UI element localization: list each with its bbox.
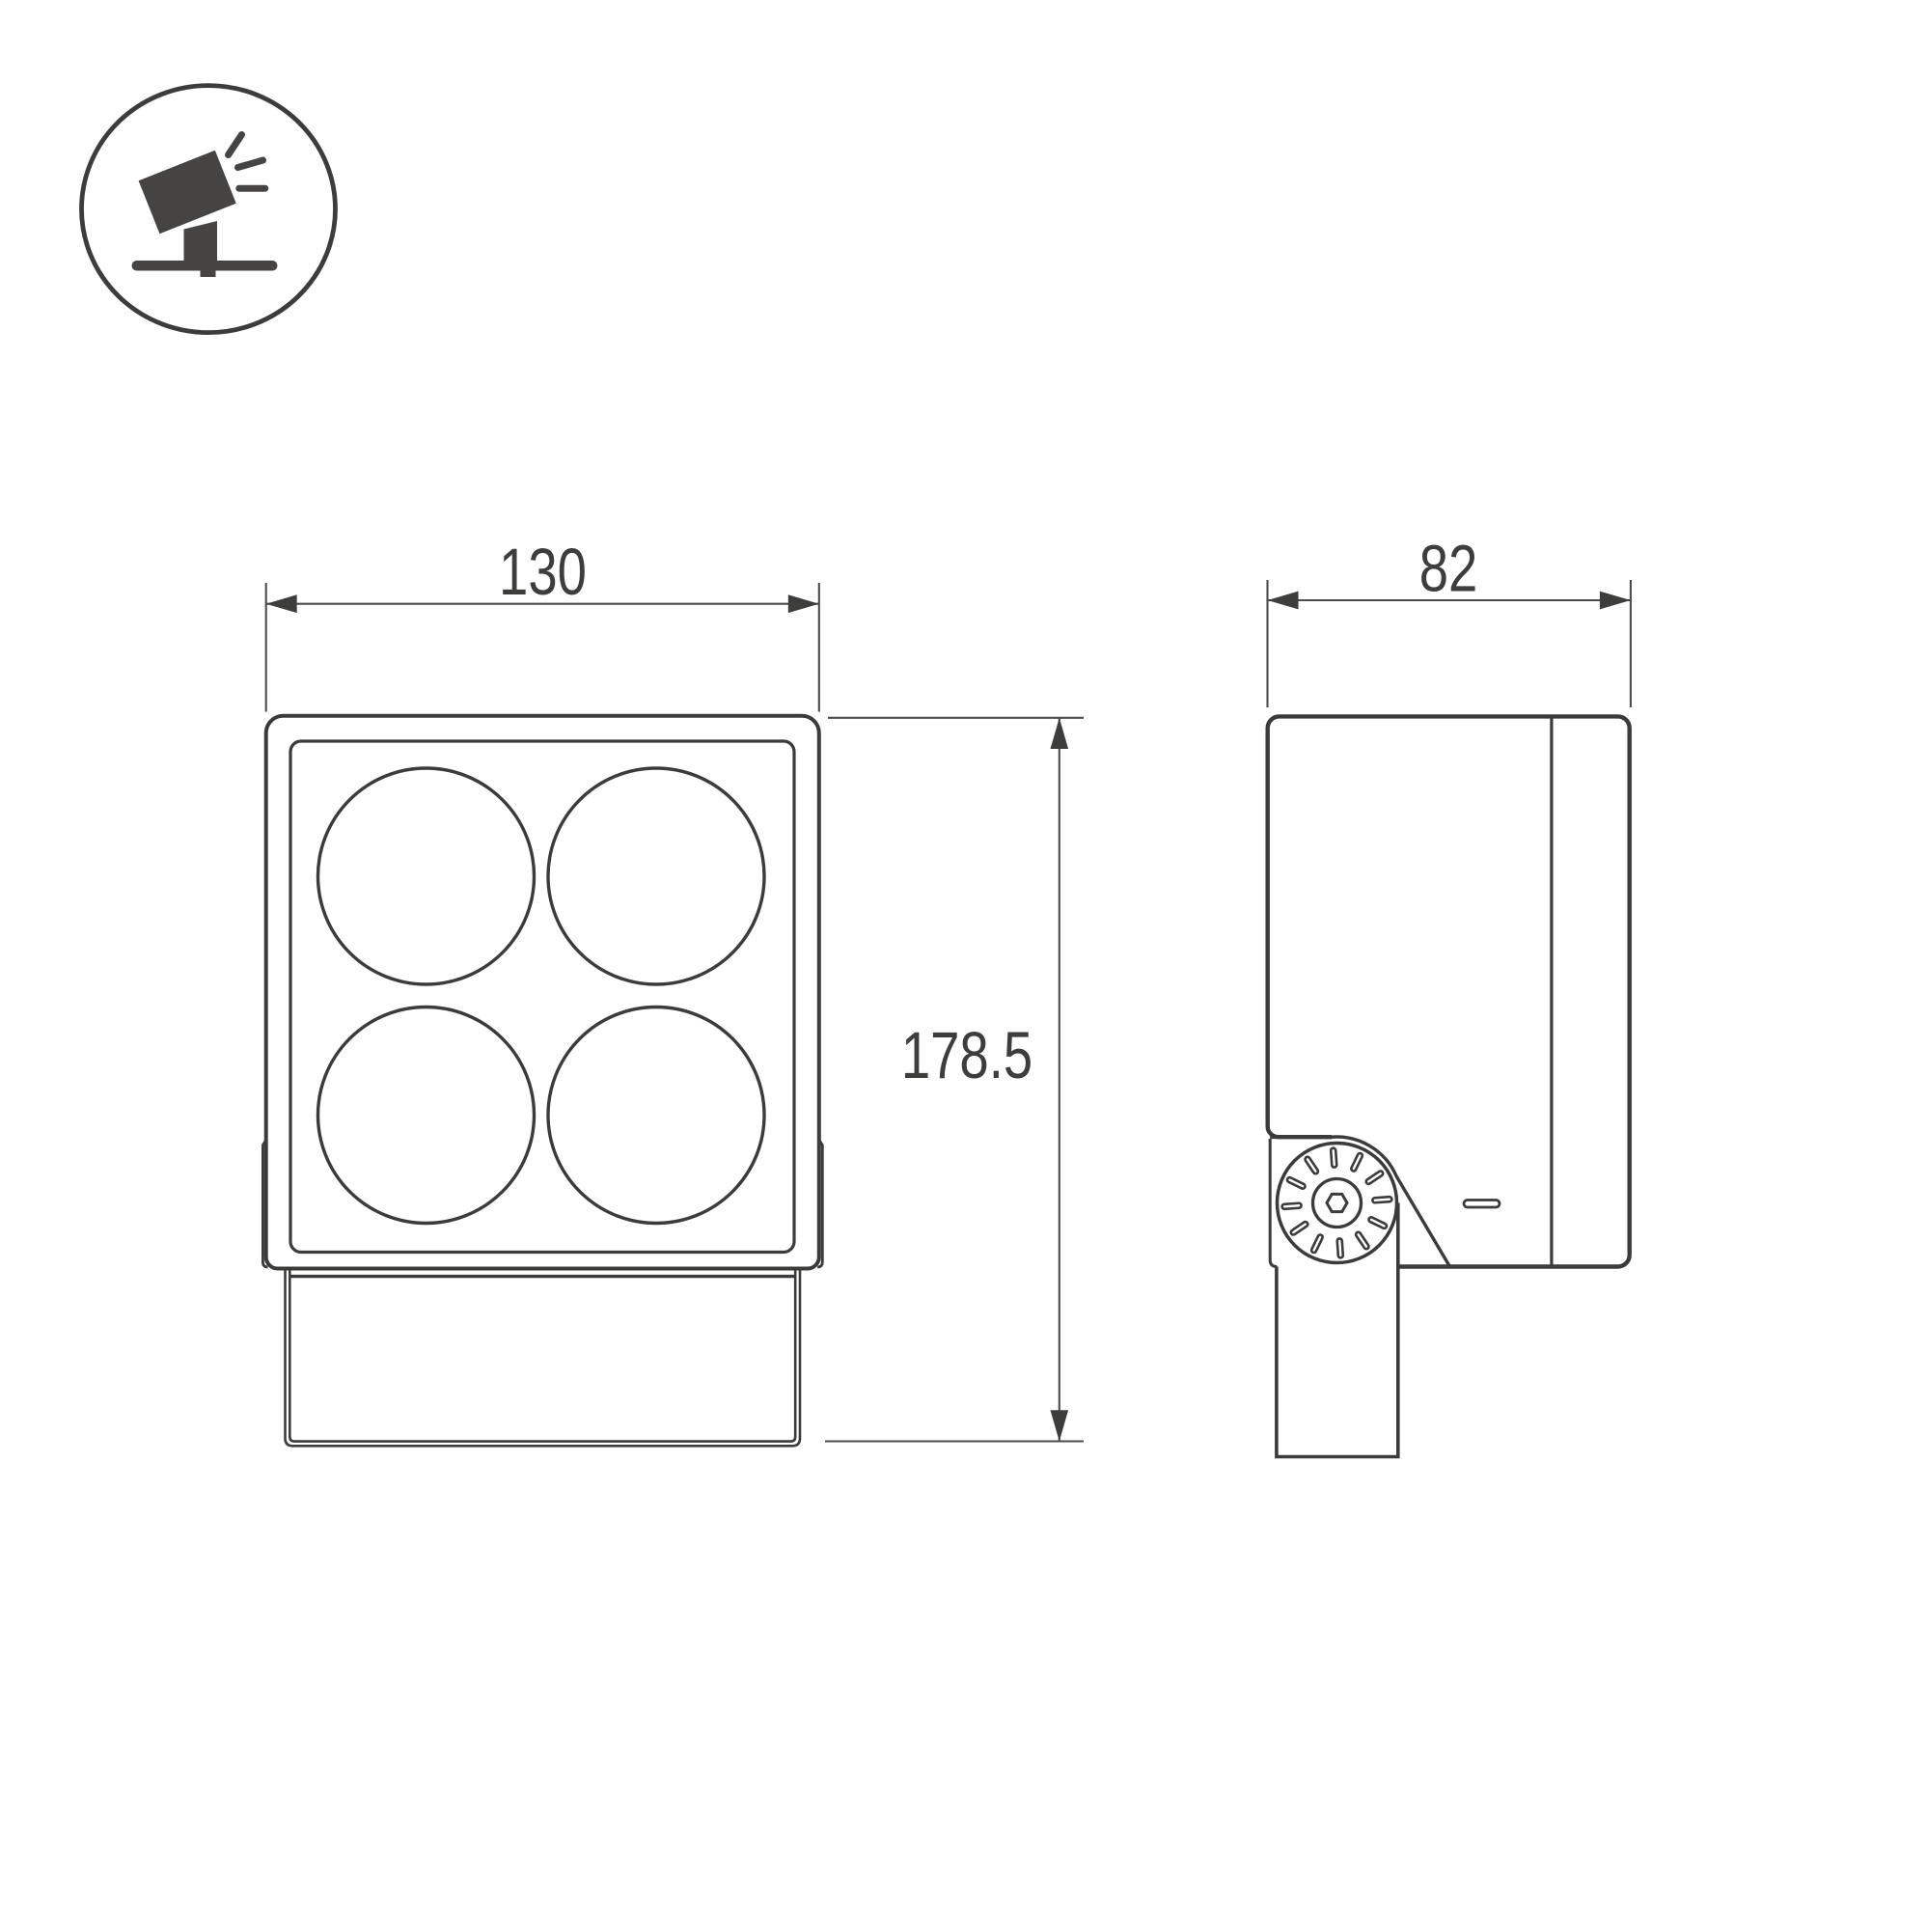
svg-text:82: 82 bbox=[1419, 532, 1478, 606]
svg-text:130: 130 bbox=[499, 536, 587, 610]
svg-text:178.5: 178.5 bbox=[901, 1019, 1032, 1093]
